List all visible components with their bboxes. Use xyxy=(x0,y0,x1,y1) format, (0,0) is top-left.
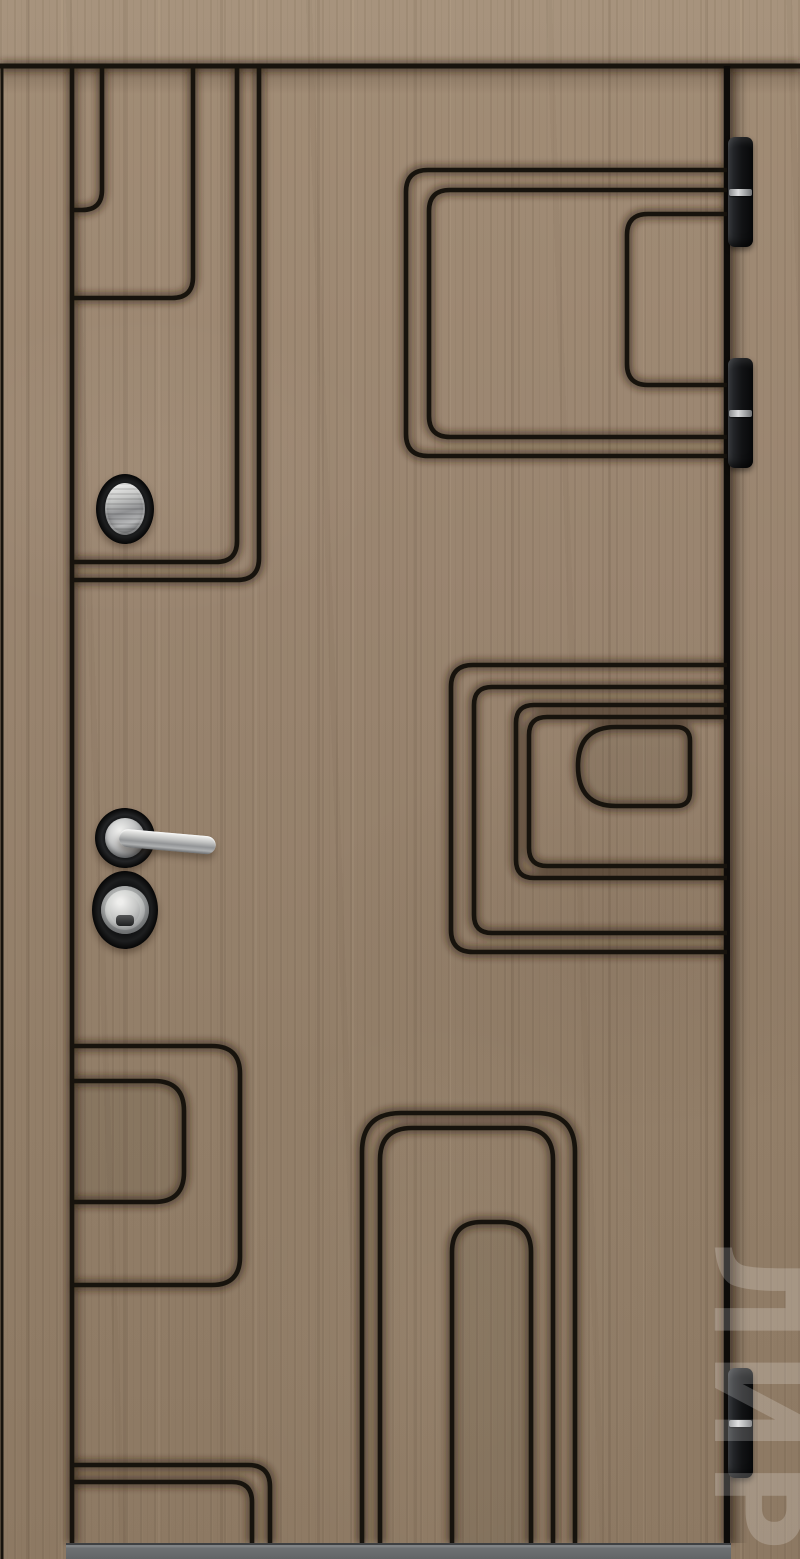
hinge-pin-ring xyxy=(729,189,752,196)
top-hinge xyxy=(728,137,753,247)
keyhole xyxy=(116,915,134,926)
threshold-sill xyxy=(66,1543,731,1559)
middle-hinge xyxy=(728,358,753,468)
brand-watermark: ЛИРА xyxy=(708,1242,800,1559)
lock-cylinder-face xyxy=(101,886,149,934)
door-product-photo: ЛИРА xyxy=(0,0,800,1559)
cylinder-escutcheon xyxy=(96,474,154,544)
escutcheon-chrome-insert xyxy=(105,483,145,535)
hinge-pin-ring xyxy=(729,410,752,417)
top-right-pattern xyxy=(406,170,727,456)
routed-groove-pattern xyxy=(0,0,800,1559)
lock-cylinder-bezel xyxy=(92,871,158,949)
